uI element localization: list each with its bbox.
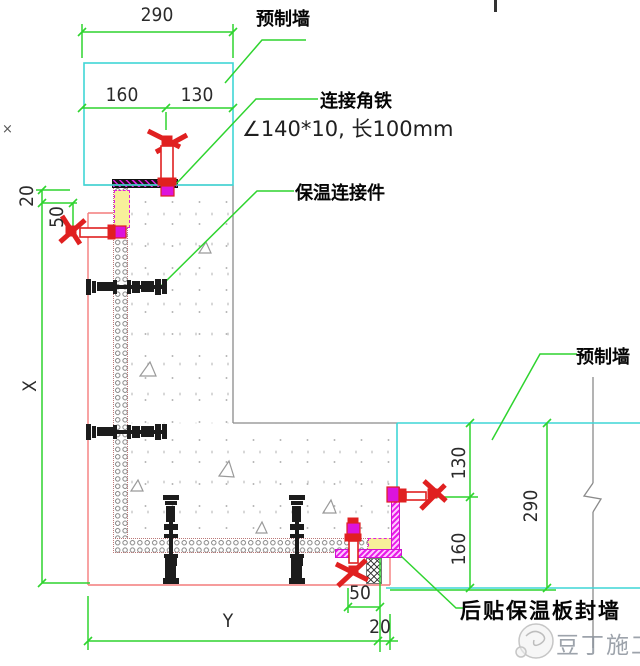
label-angle-iron-spec: ∠140*10, 长100mm <box>242 113 453 143</box>
dim-top-right: 130 <box>181 84 214 106</box>
finish-face-pink <box>88 213 390 585</box>
insulation-connector-symbols <box>86 279 305 584</box>
dim-left-offset: 50 <box>46 206 68 228</box>
dim-right-lower: 160 <box>448 533 470 566</box>
dim-bottom-gap: 20 <box>369 616 391 638</box>
clamp-left <box>60 216 126 244</box>
label-angle-iron: 连接角铁 <box>320 87 392 113</box>
drawing-canvas: 290 160 130 20 50 X 130 160 290 50 20 Y … <box>0 0 640 666</box>
label-precast-wall-top: 预制墙 <box>256 5 310 31</box>
clamp-top <box>148 131 187 196</box>
watermark-text: 豆丁施工 <box>556 626 640 660</box>
top-edge-tick <box>494 0 497 12</box>
connector-v2 <box>289 495 305 584</box>
dim-top-left: 160 <box>106 84 139 106</box>
dim-top-total: 290 <box>141 4 174 26</box>
clamp-symbols <box>60 131 446 586</box>
dim-left-gap: 20 <box>16 185 38 207</box>
label-insulation-connector: 保温连接件 <box>295 179 385 205</box>
dim-bottom-width: Y <box>223 610 233 632</box>
connector-h1 <box>86 279 167 295</box>
dim-bottom-offset: 50 <box>349 582 371 604</box>
label-precast-wall-right: 预制墙 <box>576 343 630 369</box>
clamp-bottom <box>336 518 368 586</box>
watermark-logo <box>516 624 553 658</box>
connector-v1 <box>163 495 179 584</box>
clamp-right <box>387 481 446 509</box>
dim-left-height: X <box>19 380 41 392</box>
dim-right-total: 290 <box>520 490 542 523</box>
label-seal-wall: 后贴保温板封墙 <box>460 595 621 625</box>
connector-h2 <box>86 424 167 440</box>
dim-right-upper: 130 <box>448 447 470 480</box>
stray-x-mark: × <box>2 122 13 137</box>
